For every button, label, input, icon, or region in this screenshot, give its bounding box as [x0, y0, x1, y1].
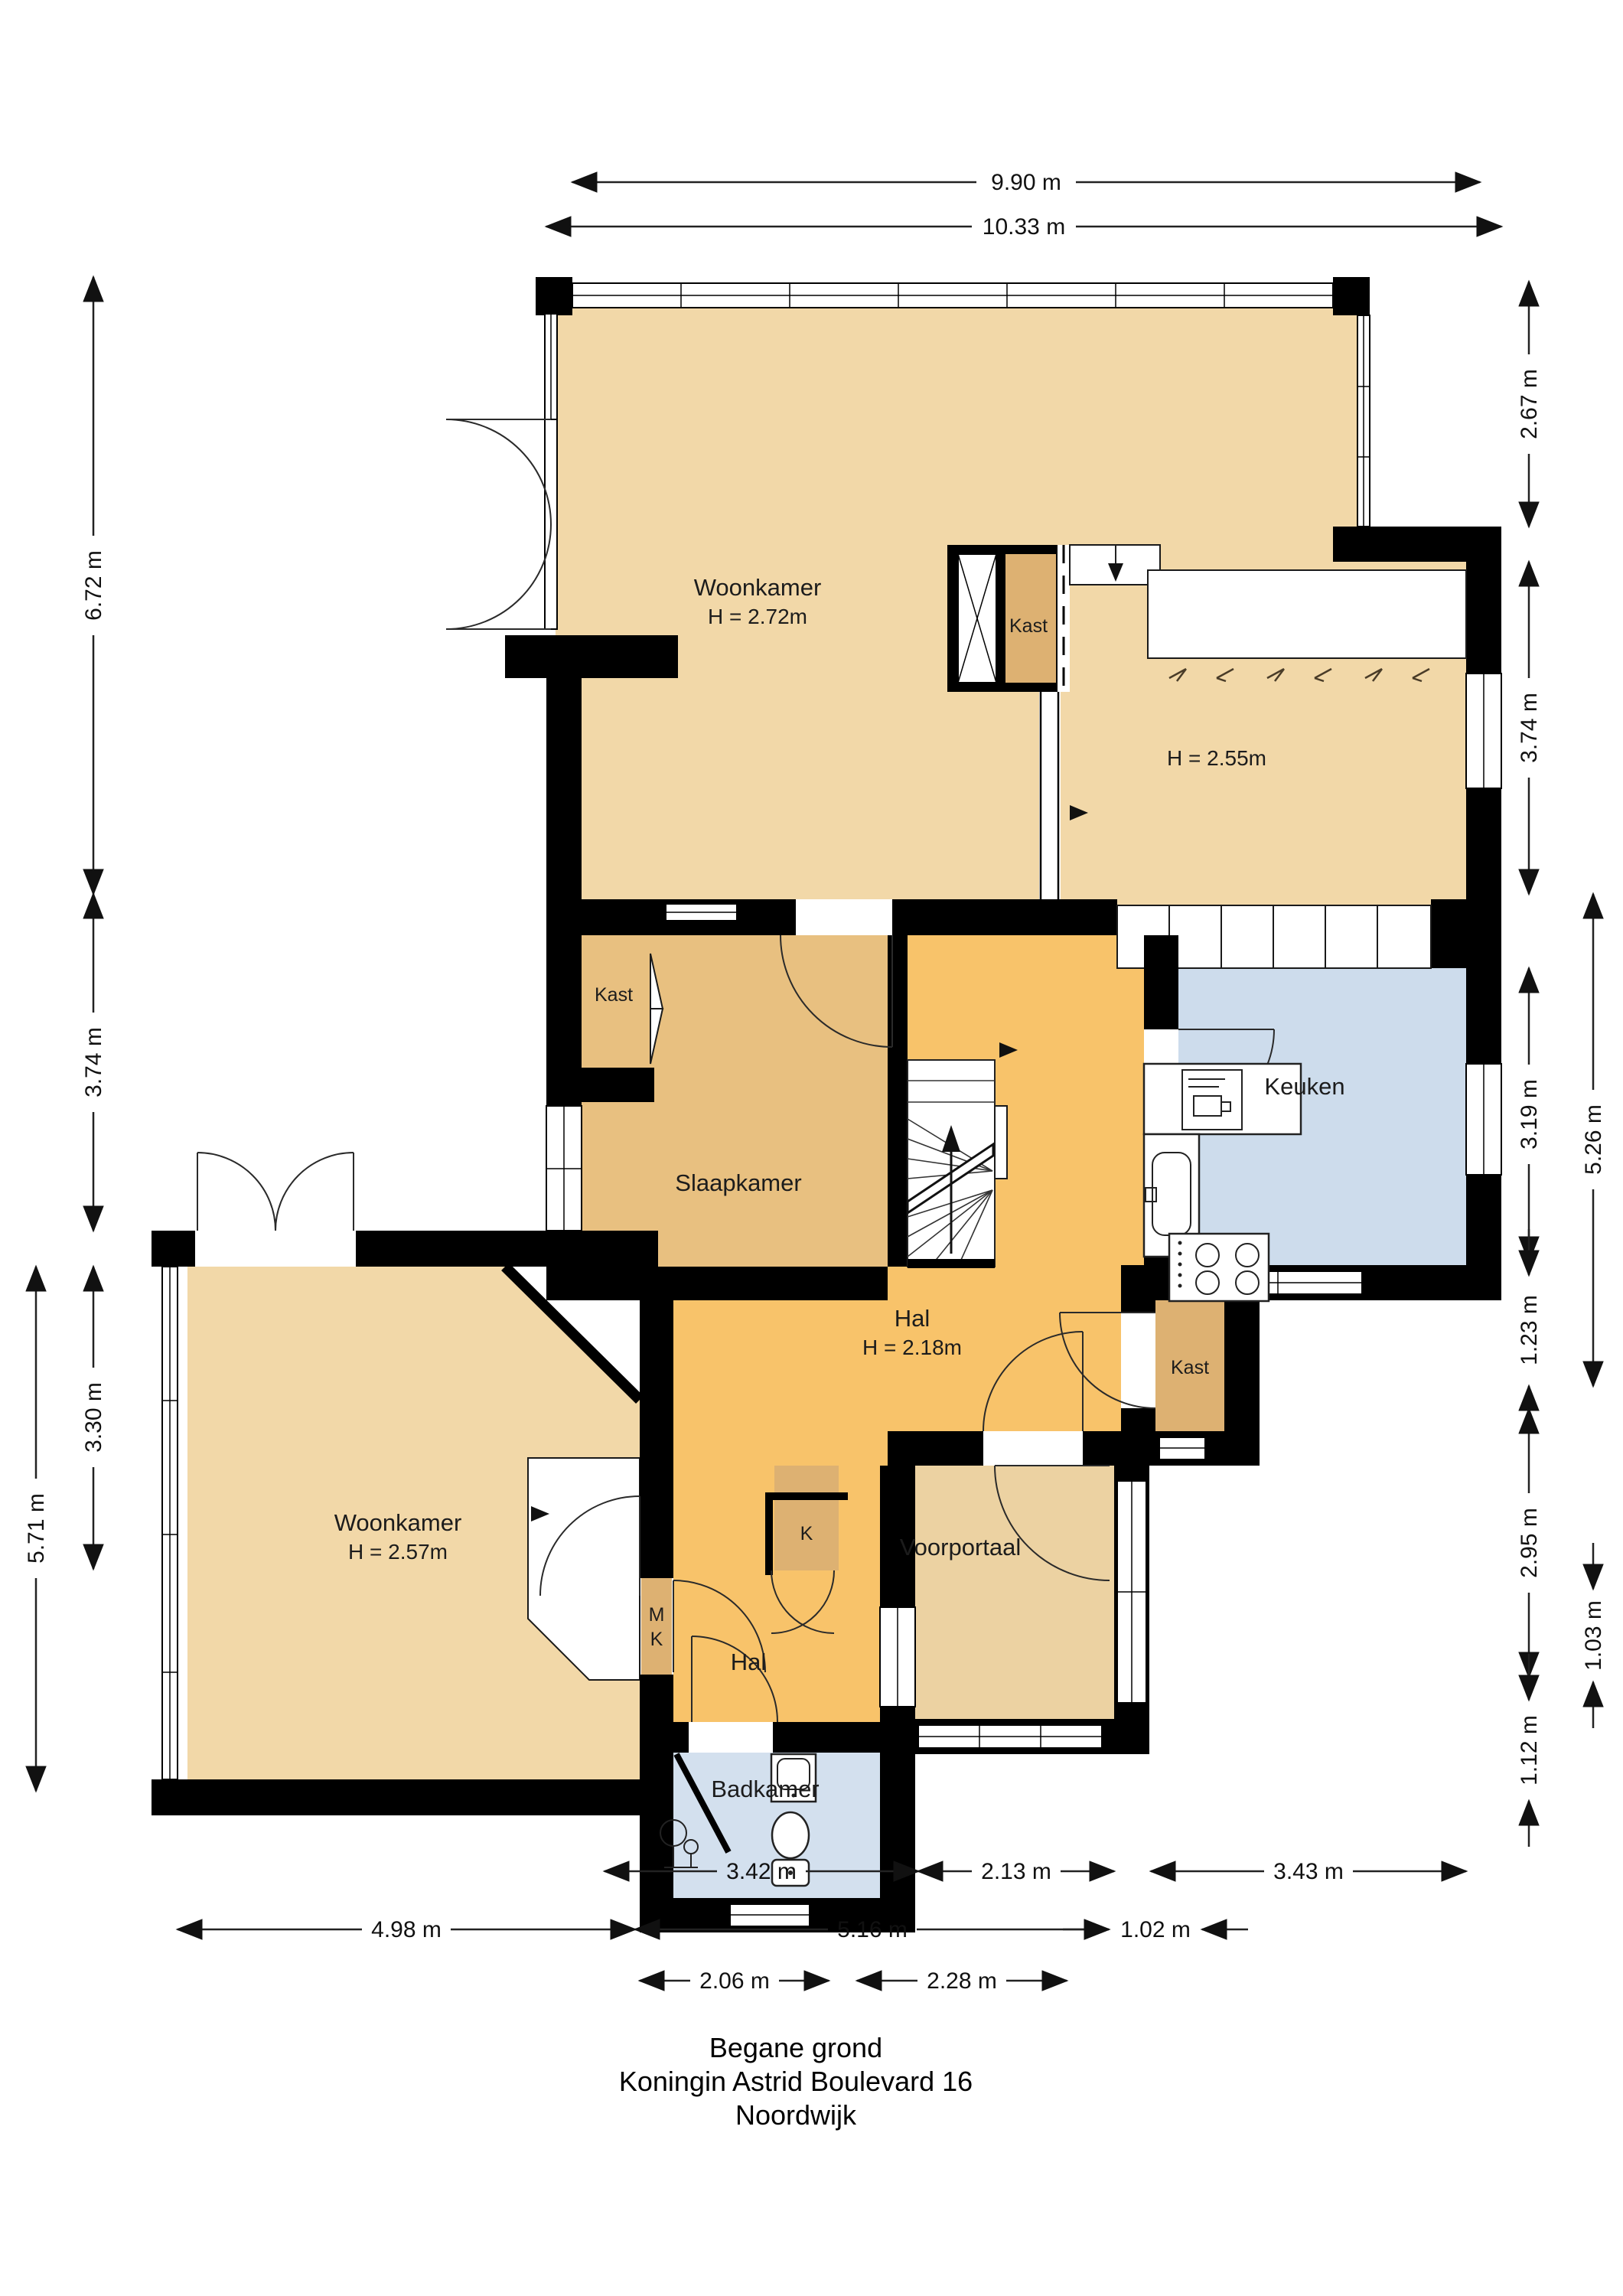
window-topblock-left: [545, 314, 557, 419]
dim-left-672: 6.72 m: [81, 277, 106, 894]
dim-bottom-102: 1.02 m: [1063, 1917, 1248, 1942]
label-k-closet: K: [800, 1523, 813, 1544]
label-kast-top: Kast: [1009, 615, 1048, 637]
label-slaapkamer: Slaapkamer: [675, 1169, 801, 1196]
dim-right-112: 1.12 m: [1517, 1654, 1542, 1847]
title-floor: Begane grond: [709, 2032, 882, 2063]
label-badkamer: Badkamer: [711, 1776, 819, 1802]
room-floors: [187, 306, 1501, 1898]
svg-text:2.67 m: 2.67 m: [1517, 369, 1542, 439]
window-topblock-right: [1357, 315, 1370, 527]
label-mk-k: K: [650, 1629, 663, 1650]
svg-text:3.74 m: 3.74 m: [1517, 693, 1542, 763]
svg-text:2.13 m: 2.13 m: [981, 1859, 1051, 1884]
dim-right-319: 3.19 m: [1517, 968, 1542, 1261]
handrail: [995, 1106, 1007, 1179]
window-middle-left: [546, 1106, 582, 1231]
svg-text:1.03 m: 1.03 m: [1581, 1600, 1606, 1671]
window-voorportaal-east: [1117, 1481, 1146, 1703]
dim-right-123: 1.23 m: [1517, 1229, 1542, 1432]
dim-bottom-228: 2.28 m: [857, 1968, 1067, 1994]
dim-left-330: 3.30 m: [81, 1267, 106, 1569]
floorplan: Woonkamer H = 2.72m H = 2.55m Kast Kast …: [0, 0, 1623, 2296]
dim-right-295: 2.95 m: [1517, 1409, 1542, 1677]
dim-bottom-498: 4.98 m: [178, 1917, 635, 1942]
svg-text:2.28 m: 2.28 m: [927, 1968, 997, 1994]
dim-top-990: 9.90 m: [572, 170, 1480, 195]
svg-text:3.42 m: 3.42 m: [726, 1859, 797, 1884]
svg-text:2.06 m: 2.06 m: [699, 1968, 770, 1994]
label-kast-left: Kast: [595, 984, 633, 1006]
svg-text:9.90 m: 9.90 m: [991, 170, 1061, 195]
dim-bottom-206: 2.06 m: [640, 1968, 829, 1994]
title-city: Noordwijk: [735, 2099, 857, 2131]
window-woonkamer-west: [162, 1267, 178, 1779]
label-keuken: Keuken: [1264, 1073, 1344, 1100]
svg-text:5.16 m: 5.16 m: [837, 1917, 908, 1942]
window-kast-hal-south: [1159, 1437, 1205, 1459]
window-slaapkamer-north: [666, 904, 737, 921]
svg-text:6.72 m: 6.72 m: [81, 550, 106, 621]
label-hal: Hal: [895, 1305, 930, 1332]
french-doors-woonkamer-bottom: [197, 1153, 354, 1231]
svg-text:3.74 m: 3.74 m: [81, 1027, 106, 1097]
svg-text:3.19 m: 3.19 m: [1517, 1079, 1542, 1150]
svg-text:10.33 m: 10.33 m: [983, 214, 1065, 240]
window-voorportaal-south: [918, 1725, 1102, 1748]
svg-text:2.95 m: 2.95 m: [1517, 1508, 1542, 1578]
mk-closet-floor: [641, 1578, 672, 1675]
svg-text:3.30 m: 3.30 m: [81, 1382, 106, 1453]
french-doors-top-left: [446, 419, 557, 629]
window-badkamer-south: [730, 1904, 810, 1926]
step-with-arrow: [1070, 545, 1160, 585]
svg-text:5.26 m: 5.26 m: [1581, 1104, 1606, 1175]
window-keuken-east: [1466, 1064, 1501, 1175]
dim-right-374: 3.74 m: [1517, 562, 1542, 894]
label-hal-small: Hal: [731, 1649, 767, 1675]
dim-right-267: 2.67 m: [1517, 282, 1542, 527]
dim-left-374: 3.74 m: [81, 894, 106, 1231]
label-voorportaal: Voorportaal: [900, 1534, 1022, 1561]
label-hal-height: H = 2.18m: [862, 1336, 962, 1359]
label-woonkamer-top: Woonkamer: [694, 574, 822, 601]
window-top: [572, 283, 1333, 308]
svg-text:5.71 m: 5.71 m: [24, 1493, 49, 1564]
dim-right-526: 5.26 m: [1581, 894, 1606, 1386]
label-woonkamer-bottom: Woonkamer: [334, 1509, 462, 1536]
label-woonkamer-top-height: H = 2.72m: [708, 605, 807, 628]
label-kast-hal: Kast: [1171, 1357, 1209, 1378]
dim-top-1033: 10.33 m: [546, 214, 1501, 240]
dim-right-103: 1.03 m: [1581, 1543, 1606, 1728]
label-mk-m: M: [649, 1604, 665, 1626]
dim-bottom-213: 2.13 m: [918, 1859, 1114, 1884]
svg-text:1.02 m: 1.02 m: [1120, 1917, 1191, 1942]
svg-text:3.43 m: 3.43 m: [1273, 1859, 1344, 1884]
plan-title: Begane grond Koningin Astrid Boulevard 1…: [619, 2032, 973, 2131]
door-band-halklein-voorportaal: [880, 1607, 915, 1707]
voorportaal-floor: [915, 1466, 1114, 1719]
stove-icon: [1169, 1234, 1269, 1301]
svg-text:1.23 m: 1.23 m: [1517, 1295, 1542, 1365]
label-area-right-height: H = 2.55m: [1167, 746, 1266, 770]
title-address: Koningin Astrid Boulevard 16: [619, 2066, 973, 2097]
svg-text:4.98 m: 4.98 m: [371, 1917, 442, 1942]
dim-bottom-343: 3.43 m: [1151, 1859, 1466, 1884]
k-closet-floor: [774, 1466, 839, 1570]
dim-left-571: 5.71 m: [24, 1267, 49, 1791]
svg-text:1.12 m: 1.12 m: [1517, 1715, 1542, 1786]
label-woonkamer-bottom-height: H = 2.57m: [348, 1540, 448, 1564]
window-right-upper: [1466, 673, 1501, 788]
